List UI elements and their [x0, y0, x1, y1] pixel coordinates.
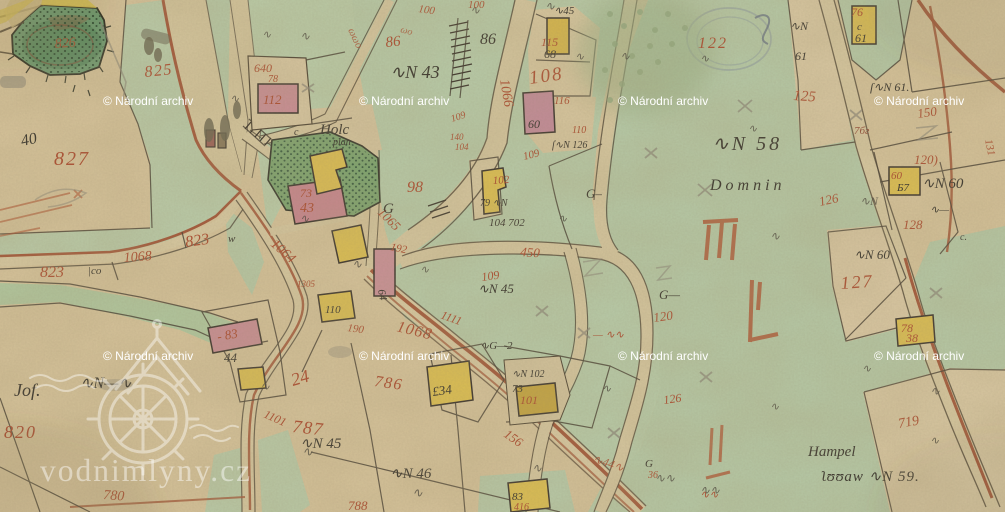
svg-text:© Národní archiv: © Národní archiv — [103, 349, 193, 363]
svg-text:© Národní archiv: © Národní archiv — [618, 349, 708, 363]
svg-text:vodnimlyny.cz: vodnimlyny.cz — [40, 453, 252, 488]
svg-text:© Národní archiv: © Národní archiv — [874, 94, 964, 108]
svg-text:© Národní archiv: © Národní archiv — [874, 349, 964, 363]
svg-text:© Národní archiv: © Národní archiv — [103, 94, 193, 108]
svg-text:© Národní archiv: © Národní archiv — [359, 349, 449, 363]
svg-text:© Národní archiv: © Národní archiv — [618, 94, 708, 108]
svg-text:© Národní archiv: © Národní archiv — [359, 94, 449, 108]
